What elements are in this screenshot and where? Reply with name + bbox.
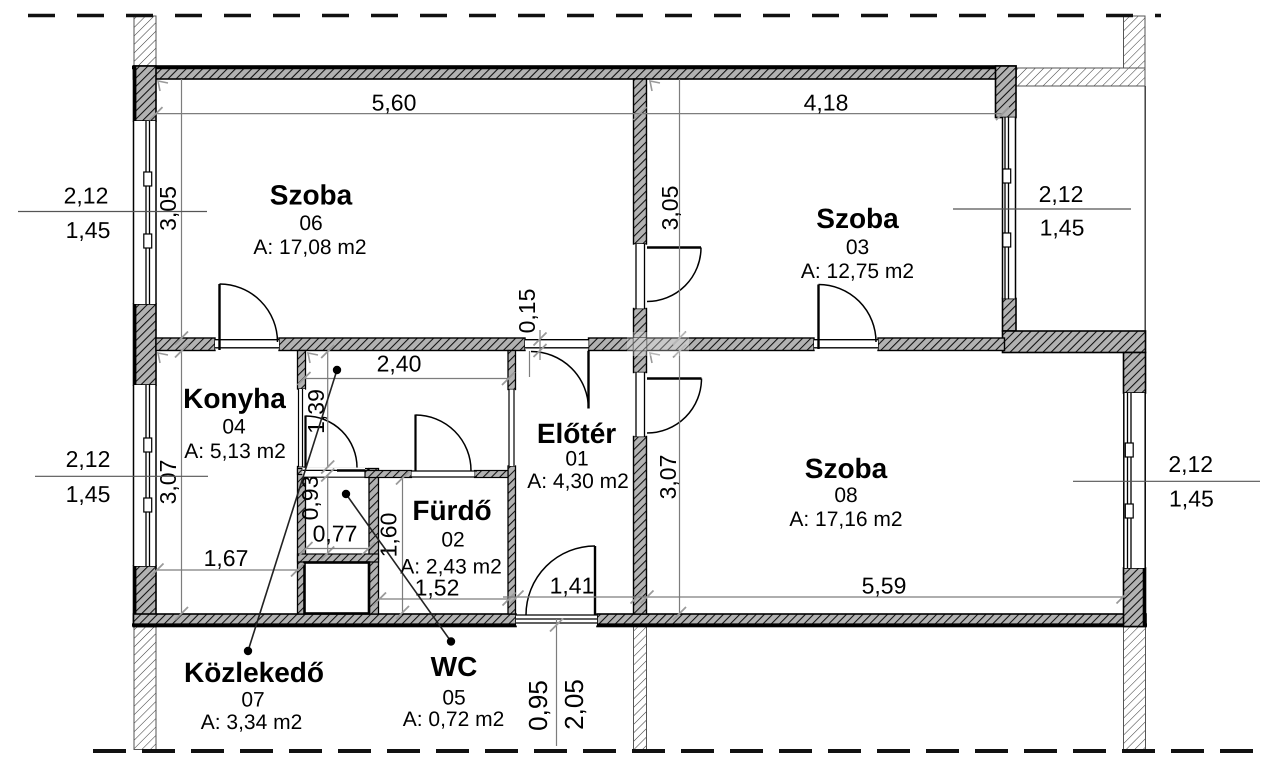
svg-text:1,45: 1,45 [1169, 485, 1214, 511]
svg-text:A: 4,30 m2: A: 4,30 m2 [527, 470, 629, 493]
svg-text:5,60: 5,60 [372, 89, 417, 115]
svg-text:A: 0,72 m2: A: 0,72 m2 [403, 708, 505, 731]
svg-text:4,18: 4,18 [804, 89, 849, 115]
svg-text:Szoba: Szoba [816, 203, 899, 234]
svg-text:2,40: 2,40 [377, 350, 422, 376]
svg-text:3,05: 3,05 [657, 186, 683, 231]
svg-text:03: 03 [846, 236, 869, 259]
svg-text:Konyha: Konyha [183, 383, 286, 414]
svg-text:Közlekedő: Közlekedő [184, 657, 324, 688]
svg-text:2,12: 2,12 [66, 446, 111, 472]
svg-text:A: 5,13 m2: A: 5,13 m2 [184, 440, 286, 463]
svg-text:5,59: 5,59 [862, 572, 907, 598]
svg-text:2,12: 2,12 [1039, 181, 1084, 207]
svg-text:04: 04 [222, 415, 246, 438]
svg-text:0,95: 0,95 [523, 680, 553, 731]
svg-text:1,45: 1,45 [66, 481, 111, 507]
svg-text:1,39: 1,39 [303, 389, 329, 434]
svg-text:Előtér: Előtér [537, 418, 616, 449]
svg-text:0,77: 0,77 [313, 520, 358, 546]
svg-text:Fürdő: Fürdő [412, 495, 491, 526]
svg-text:3,07: 3,07 [655, 455, 681, 500]
svg-text:A: 3,34 m2: A: 3,34 m2 [201, 711, 303, 734]
svg-text:07: 07 [241, 688, 264, 711]
svg-text:1,45: 1,45 [1040, 214, 1085, 240]
svg-text:0,15: 0,15 [514, 289, 540, 334]
svg-text:05: 05 [442, 686, 465, 709]
svg-text:1,41: 1,41 [550, 572, 595, 598]
svg-text:2,05: 2,05 [559, 679, 589, 730]
svg-text:06: 06 [299, 212, 322, 235]
svg-text:3,05: 3,05 [155, 186, 181, 231]
svg-text:A: 17,08 m2: A: 17,08 m2 [253, 236, 366, 259]
svg-text:08: 08 [834, 484, 857, 507]
svg-text:A: 2,43 m2: A: 2,43 m2 [400, 555, 502, 578]
svg-text:1,67: 1,67 [204, 545, 249, 571]
svg-text:01: 01 [565, 447, 588, 470]
svg-text:Szoba: Szoba [805, 453, 888, 484]
svg-text:1,60: 1,60 [376, 513, 402, 558]
svg-text:A: 17,16 m2: A: 17,16 m2 [789, 508, 902, 531]
svg-text:A: 12,75 m2: A: 12,75 m2 [801, 260, 914, 283]
svg-text:Szoba: Szoba [270, 179, 353, 210]
svg-text:3,07: 3,07 [155, 460, 181, 505]
svg-text:02: 02 [441, 528, 464, 551]
svg-text:1,45: 1,45 [66, 217, 111, 243]
svg-text:2,12: 2,12 [1168, 451, 1213, 477]
svg-text:2,12: 2,12 [64, 182, 109, 208]
svg-text:WC: WC [431, 651, 478, 682]
